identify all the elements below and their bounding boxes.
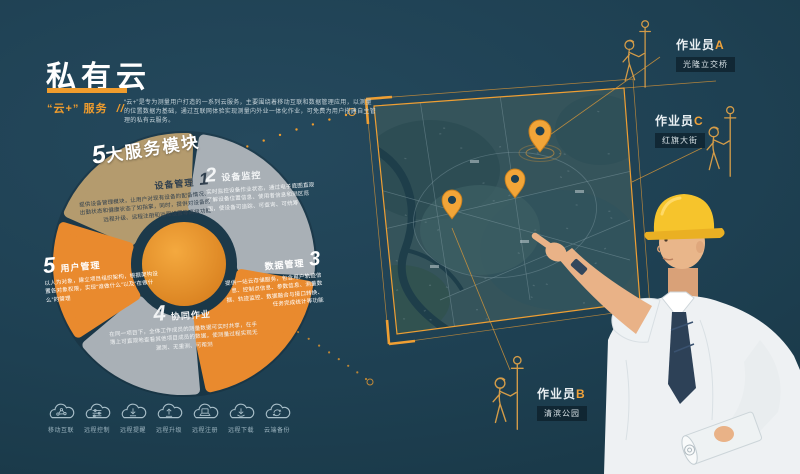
footer-item-mobile-internet: 移动互联 [43,400,79,434]
module-title: 设备监控 [221,168,262,184]
footer-label: 远程升级 [151,425,187,434]
private-cloud-poster: 私有云 “云+” 服务 // “云+”是专为测量用户打造的一系列云服务，主要围绕… [0,0,800,474]
module-title: 数据管理 [264,256,305,272]
module-title: 协同作业 [170,307,211,323]
service-subtitle: “云+” 服务 // [47,100,125,116]
module-label-device-monitoring: 2 设备监控 实时监控设备作业状态，通过电子底图直观了解设备位置信息、使用者信息… [204,158,319,213]
worker-letter: B [576,387,586,401]
worker-location: 清滨公园 [537,406,587,421]
worker-letter: A [715,38,725,52]
footer-item-remote-control: 远程控制 [79,400,115,434]
footer-label: 远程控制 [79,425,115,434]
footer-item-remote-download: 远程下载 [223,400,259,434]
remote-register-icon [190,400,220,422]
cloud-services-bar: 移动互联 远程控制 远程提醒 远程升级 [43,400,295,434]
worker-letter: C [694,114,704,128]
remote-download-icon [226,400,256,422]
cloud-plus-label: “云+” [47,103,79,115]
title-underline [47,88,127,93]
footer-label: 移动互联 [43,425,79,434]
footer-item-cloud-backup: 云端备份 [259,400,295,434]
worker-location: 红旗大街 [655,133,705,148]
page-description: “云+”是专为测量用户打造的一系列云服务，主要围绕着移动互联和数据管理应用，以测… [124,99,376,126]
cloud-backup-icon [262,400,292,422]
remote-upgrade-icon [154,400,184,422]
module-number: 4 [153,302,167,325]
module-number: 2 [204,165,216,186]
module-number: 5 [42,254,56,277]
footer-item-remote-reminder: 远程提醒 [115,400,151,434]
mobile-internet-icon [46,400,76,422]
worker-label-a: 作业员A 光隆立交桥 [676,36,735,72]
footer-item-remote-upgrade: 远程升级 [151,400,187,434]
module-label-collaborative-work: 4 协同作业 在同一项目下，全体工作成员的测量数据可实时共享，在手簿上可直观地查… [106,296,259,356]
footer-label: 远程注册 [187,425,223,434]
worker-location: 光隆立交桥 [676,57,735,72]
module-label-user-management: 5 用户管理 以人为对象，建立项目组织架构，根据架构设置各对象权限，实现“谁做什… [42,245,164,305]
footer-label: 云端备份 [259,425,295,434]
footer-label: 远程下载 [223,425,259,434]
worker-label-b: 作业员B 清滨公园 [537,385,587,421]
module-title: 用户管理 [60,258,101,274]
worker-label-c: 作业员C 红旗大街 [655,112,705,148]
module-title: 设备管理 [154,175,195,191]
footer-label: 远程提醒 [115,425,151,434]
remote-reminder-icon [118,400,148,422]
footer-item-remote-register: 远程注册 [187,400,223,434]
worker-name: 作业员 [537,387,576,401]
worker-name: 作业员 [676,38,715,52]
module-number: 3 [308,249,321,270]
worker-name: 作业员 [655,114,694,128]
service-label: 服务 [84,103,108,115]
remote-control-icon [82,400,112,422]
